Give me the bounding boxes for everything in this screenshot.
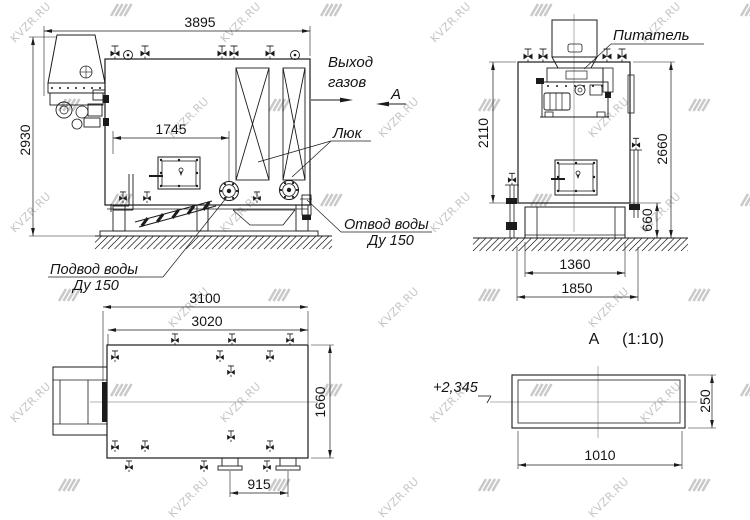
front-view: 3895 2930 1745 Выход газов А Люк Отвод в… <box>17 14 432 294</box>
valve-icon <box>618 49 627 62</box>
valve-icon <box>228 334 236 345</box>
valve-icon <box>200 461 208 472</box>
plan-view: 3100 3020 1660 915 <box>53 290 334 497</box>
dim-body-height: 2110 <box>475 118 491 148</box>
dim-total-height: 2660 <box>654 133 670 164</box>
drawing-canvas: KVZR.RUKVZR.RUKVZR.RUKVZR.RUKVZR.RUKVZR.… <box>0 0 750 500</box>
label-hatch: Люк <box>332 125 363 142</box>
plan-view-geometry <box>53 305 334 497</box>
dim-plan-width: 1660 <box>312 386 328 417</box>
valve-icon <box>227 431 235 442</box>
label-water-outlet-line1: Отвод воды <box>344 217 429 233</box>
detail-title: А <box>589 331 600 348</box>
valve-icon <box>539 49 548 62</box>
detail-view-a: А (1:10) +2,345 250 1010 <box>433 331 716 469</box>
valve-icon <box>263 461 271 472</box>
dim-plan-total-length: 3100 <box>189 290 220 306</box>
valve-icon <box>524 49 533 62</box>
dim-foundation-outer: 1850 <box>561 280 592 296</box>
valve-icon <box>111 441 119 452</box>
valve-icon <box>143 192 151 203</box>
valve-icon <box>216 351 224 362</box>
valve-icon <box>218 46 227 59</box>
dim-foundation-inner: 1360 <box>559 256 590 272</box>
side-view: Питатель 2110 2660 660 1360 1850 <box>473 14 704 301</box>
valve-icon <box>266 351 274 362</box>
valve-icon <box>111 351 119 362</box>
label-water-inlet-line2: Ду 150 <box>71 278 119 294</box>
view-direction-label: А <box>390 86 401 103</box>
label-feeder: Питатель <box>613 27 690 44</box>
valve-icon <box>141 441 149 452</box>
valve-icon <box>508 173 516 185</box>
label-water-outlet-line2: Ду 150 <box>366 233 414 249</box>
valve-icon <box>266 441 274 452</box>
valve-icon <box>286 334 294 345</box>
valve-icon <box>125 461 133 472</box>
dim-base-height: 660 <box>639 208 655 232</box>
dim-detail-length: 1010 <box>584 447 615 463</box>
valve-icon <box>230 46 239 59</box>
label-gas-outlet-line1: Выход <box>328 54 373 71</box>
valve-icon <box>266 46 275 59</box>
valve-icon <box>253 192 261 203</box>
technical-drawing: 3895 2930 1745 Выход газов А Люк Отвод в… <box>0 0 750 500</box>
valve-icon <box>227 366 235 377</box>
valve-icon <box>632 138 640 150</box>
valve-icon <box>171 334 179 345</box>
valve-icon <box>119 192 127 203</box>
dim-overall-height: 2930 <box>17 124 33 155</box>
dim-overall-width: 3895 <box>184 14 215 30</box>
valve-icon <box>141 46 150 59</box>
label-water-inlet-line1: Подвод воды <box>50 262 138 278</box>
valve-icon <box>111 46 120 59</box>
level-mark-value: +2,345 <box>433 380 479 396</box>
dim-detail-height: 250 <box>697 389 713 413</box>
dim-plan-body-length: 3020 <box>191 313 222 329</box>
label-gas-outlet-line2: газов <box>328 74 366 91</box>
detail-scale: (1:10) <box>622 331 664 348</box>
dim-flange-spacing: 915 <box>247 476 271 492</box>
dim-flange-offset: 1745 <box>155 121 186 137</box>
